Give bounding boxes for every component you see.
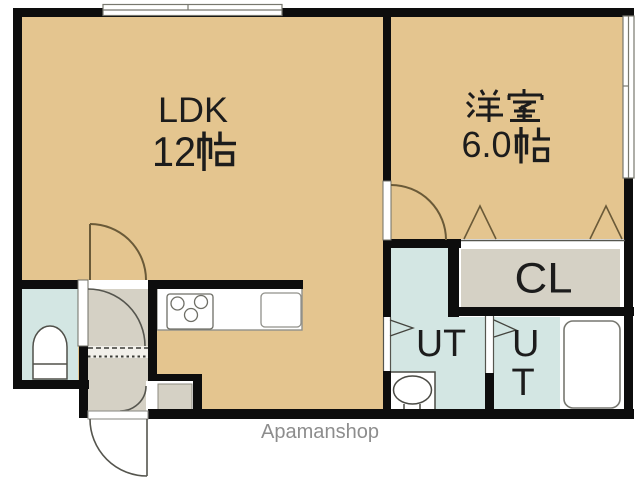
svg-text:Apamanshop: Apamanshop: [261, 420, 379, 443]
svg-text:CL: CL: [515, 256, 573, 303]
svg-text:12: 12: [152, 128, 196, 175]
svg-text:UT: UT: [416, 323, 466, 365]
svg-text:U: U: [512, 323, 539, 365]
svg-text:T: T: [512, 362, 535, 404]
svg-text:6.0: 6.0: [462, 124, 512, 165]
svg-text:LDK: LDK: [158, 91, 228, 130]
